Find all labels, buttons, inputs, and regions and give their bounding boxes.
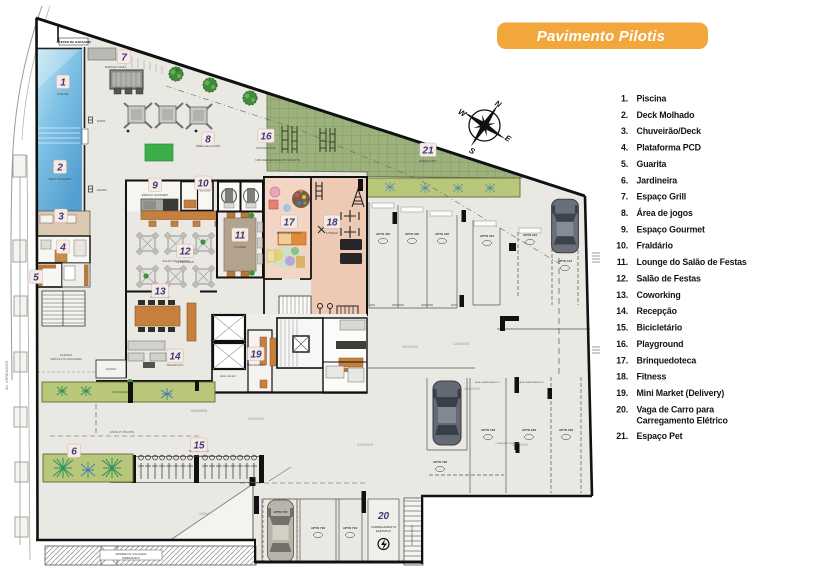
svg-text:RAMPA ACESSO: RAMPA ACESSO xyxy=(410,525,414,545)
svg-text:17.: 17. xyxy=(616,355,628,365)
svg-text:ESPAÇO PET: ESPAÇO PET xyxy=(419,159,437,163)
svg-text:ACESSO: ACESSO xyxy=(106,367,117,371)
svg-text:5: 5 xyxy=(33,273,39,284)
svg-text:USO DE RECREAÇÃO INFANTIL: USO DE RECREAÇÃO INFANTIL xyxy=(255,157,301,162)
svg-text:16: 16 xyxy=(260,132,272,143)
svg-text:GARAGEM: GARAGEM xyxy=(248,417,265,421)
svg-text:DUCHA: DUCHA xyxy=(97,120,106,123)
svg-text:VEÍCULOS GARAGEM: VEÍCULOS GARAGEM xyxy=(50,357,82,361)
svg-text:HALL ELEV.: HALL ELEV. xyxy=(220,374,237,378)
svg-text:LOUNGE: LOUNGE xyxy=(234,245,246,249)
svg-text:12 PESSOAS: 12 PESSOAS xyxy=(176,260,193,264)
svg-text:Coworking: Coworking xyxy=(637,290,681,300)
svg-text:Playground: Playground xyxy=(637,339,684,349)
svg-text:12.: 12. xyxy=(616,273,628,283)
svg-text:Bicicletário: Bicicletário xyxy=(637,323,683,333)
svg-text:11.: 11. xyxy=(617,257,628,267)
svg-text:APTO 702: APTO 702 xyxy=(311,526,325,530)
svg-text:3.: 3. xyxy=(621,126,628,136)
svg-text:REBAIXADA: REBAIXADA xyxy=(122,556,139,560)
svg-text:Guarita: Guarita xyxy=(637,159,667,169)
svg-text:19: 19 xyxy=(250,350,262,361)
svg-text:Espaço Grill: Espaço Grill xyxy=(637,192,687,202)
svg-text:17: 17 xyxy=(283,218,295,229)
svg-text:16.: 16. xyxy=(616,339,628,349)
svg-text:9: 9 xyxy=(152,181,158,192)
svg-text:12: 12 xyxy=(179,247,191,258)
svg-text:ESPAÇO GOURMET: ESPAÇO GOURMET xyxy=(142,193,169,197)
svg-text:APTO 201: APTO 201 xyxy=(523,233,537,237)
svg-text:6: 6 xyxy=(71,447,77,458)
svg-text:11: 11 xyxy=(235,231,246,242)
svg-text:Plataforma PCD: Plataforma PCD xyxy=(637,143,701,153)
svg-text:VAGA CARREGAMENTO: VAGA CARREGAMENTO xyxy=(474,381,499,384)
svg-text:Piscina: Piscina xyxy=(637,94,667,104)
svg-text:Fraldário: Fraldário xyxy=(637,241,674,251)
svg-text:Fitness: Fitness xyxy=(637,372,667,382)
svg-text:4.: 4. xyxy=(621,143,628,153)
svg-text:PLAYGROUND: PLAYGROUND xyxy=(256,146,275,150)
svg-text:1: 1 xyxy=(60,78,66,89)
svg-text:9.: 9. xyxy=(621,224,628,234)
svg-text:MINI MARKET: MINI MARKET xyxy=(247,363,266,367)
svg-text:Vaga de Carro para: Vaga de Carro para xyxy=(637,404,715,414)
svg-text:LOCAL MOTOCICLETAS: LOCAL MOTOCICLETAS xyxy=(496,442,521,445)
svg-text:18: 18 xyxy=(326,218,338,229)
svg-text:Carregamento Elétrico: Carregamento Elétrico xyxy=(637,416,729,426)
svg-text:13: 13 xyxy=(154,287,166,298)
svg-text:1.: 1. xyxy=(621,94,628,104)
svg-text:14.: 14. xyxy=(616,306,628,316)
svg-text:20: 20 xyxy=(377,511,390,522)
svg-text:ESPAÇO GRILL: ESPAÇO GRILL xyxy=(105,65,127,69)
svg-text:Brinquedoteca: Brinquedoteca xyxy=(637,355,697,365)
svg-text:GARAGEM: GARAGEM xyxy=(453,342,470,346)
svg-text:APTO 301: APTO 301 xyxy=(480,234,494,238)
svg-text:ACESSO DA GARAGEM: ACESSO DA GARAGEM xyxy=(56,40,91,44)
svg-text:Jardineira: Jardineira xyxy=(637,175,678,185)
svg-text:4: 4 xyxy=(59,243,66,254)
svg-text:Recepção: Recepção xyxy=(637,306,678,316)
svg-text:BICICLETÁRIO: BICICLETÁRIO xyxy=(189,454,211,458)
svg-text:21: 21 xyxy=(421,146,434,157)
svg-text:Área de jogos: Área de jogos xyxy=(637,208,693,218)
svg-text:8: 8 xyxy=(205,135,211,146)
svg-text:APTO 603: APTO 603 xyxy=(522,428,536,432)
svg-text:APTO 202: APTO 202 xyxy=(435,232,449,236)
svg-text:GARAGEM: GARAGEM xyxy=(464,387,481,391)
svg-text:APTO 503: APTO 503 xyxy=(559,428,573,432)
svg-text:10: 10 xyxy=(197,179,209,190)
svg-text:14: 14 xyxy=(169,352,181,363)
svg-text:PISCINA: PISCINA xyxy=(57,92,68,96)
svg-text:Deck Molhado: Deck Molhado xyxy=(637,110,696,120)
svg-text:GARAGEM: GARAGEM xyxy=(357,443,374,447)
svg-text:2.: 2. xyxy=(621,110,628,120)
svg-text:Espaço Pet: Espaço Pet xyxy=(637,431,683,441)
svg-text:APTO 402: APTO 402 xyxy=(376,232,390,236)
svg-text:APTO 704: APTO 704 xyxy=(343,526,357,530)
svg-text:10.: 10. xyxy=(616,241,628,251)
svg-text:VAGA CARREGAMENTO: VAGA CARREGAMENTO xyxy=(518,381,543,384)
svg-text:7: 7 xyxy=(121,53,127,64)
svg-text:JARDINEIRA: JARDINEIRA xyxy=(112,390,129,394)
svg-text:Pavimento Pilotis: Pavimento Pilotis xyxy=(537,28,665,45)
svg-text:15.: 15. xyxy=(616,323,628,333)
svg-text:APTO 302: APTO 302 xyxy=(405,232,419,236)
svg-text:GARAGEM: GARAGEM xyxy=(402,345,419,349)
svg-text:3: 3 xyxy=(58,212,64,223)
svg-text:AV. VEREADOR: AV. VEREADOR xyxy=(4,361,9,390)
svg-text:APTO 705: APTO 705 xyxy=(273,510,287,514)
svg-text:ELÉTRICO: ELÉTRICO xyxy=(376,528,392,533)
svg-text:FITNESS: FITNESS xyxy=(326,231,338,235)
svg-text:Mini Market (Delivery): Mini Market (Delivery) xyxy=(637,388,725,398)
svg-text:ESCADA: ESCADA xyxy=(97,189,107,192)
svg-text:2: 2 xyxy=(56,163,63,174)
svg-text:FAIXA P/ PILOTIS: FAIXA P/ PILOTIS xyxy=(110,430,134,434)
svg-text:7.: 7. xyxy=(621,192,628,202)
svg-text:5.: 5. xyxy=(621,159,628,169)
svg-text:GARAGEM: GARAGEM xyxy=(191,409,208,413)
svg-text:Espaço Gourmet: Espaço Gourmet xyxy=(637,224,706,234)
svg-text:21.: 21. xyxy=(616,431,628,441)
svg-text:Lounge do Salão de Festas: Lounge do Salão de Festas xyxy=(637,257,747,267)
svg-text:6.: 6. xyxy=(621,175,628,185)
svg-text:19.: 19. xyxy=(616,388,628,398)
svg-text:20.: 20. xyxy=(616,404,628,414)
svg-text:APTO 703: APTO 703 xyxy=(481,428,495,432)
svg-text:18.: 18. xyxy=(616,372,628,382)
svg-text:13.: 13. xyxy=(616,290,628,300)
svg-text:Chuveirão/Deck: Chuveirão/Deck xyxy=(637,126,702,136)
svg-text:DECK MOLHADO: DECK MOLHADO xyxy=(49,177,73,181)
svg-text:APTO 706: APTO 706 xyxy=(433,460,447,464)
svg-text:BRINQUEDOTECA: BRINQUEDOTECA xyxy=(277,231,302,235)
svg-text:APTO 101: APTO 101 xyxy=(558,259,572,263)
svg-text:8.: 8. xyxy=(621,208,628,218)
svg-text:15: 15 xyxy=(193,441,205,452)
svg-text:Salão de Festas: Salão de Festas xyxy=(637,273,702,283)
